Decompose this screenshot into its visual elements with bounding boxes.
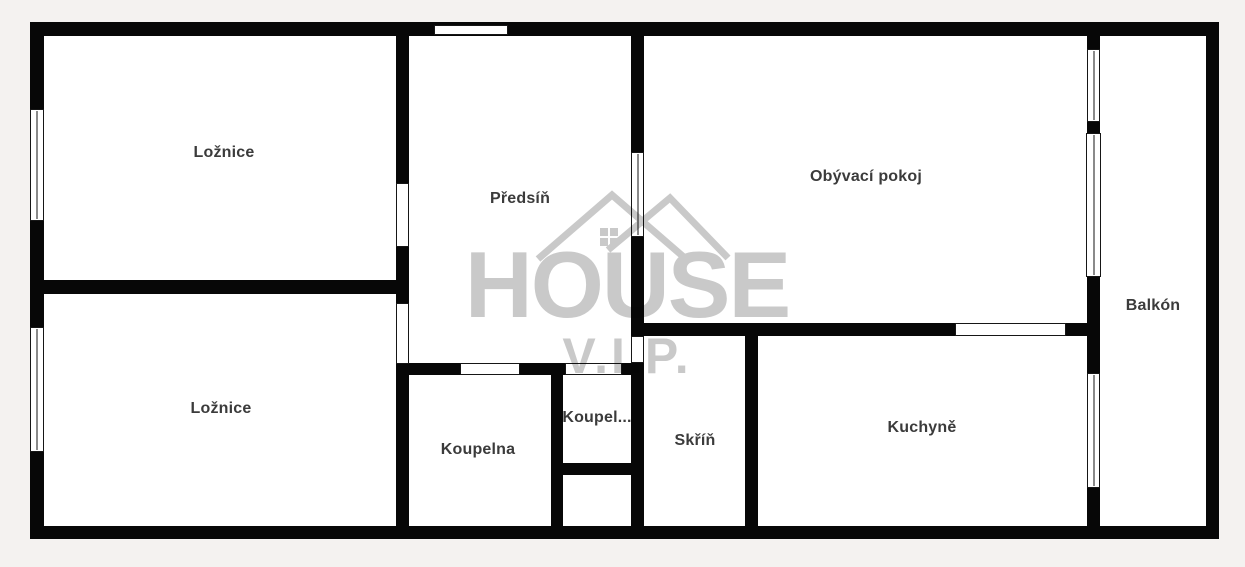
door-koupel (565, 363, 622, 375)
room-label-predsin: Předsíň (490, 190, 550, 208)
room-label-skrin: Skříň (674, 432, 715, 450)
room-balkon-area (1100, 35, 1206, 526)
room-label-obyvaci-pokoj: Obývací pokoj (810, 168, 922, 186)
door-loznice-top (396, 183, 409, 247)
wall-between-bedrooms (30, 280, 409, 294)
door-loznice-bottom (396, 303, 409, 364)
window-living-balcony (1087, 49, 1100, 122)
room-label-koupel: Koupel... (562, 409, 631, 427)
wall-bedrooms-hall (396, 35, 409, 526)
wall-skrin-kitchen (745, 323, 758, 526)
outer-wall-bottom (30, 526, 1219, 539)
room-label-loznice-bottom: Ložnice (191, 400, 252, 418)
window-kuchyne-balcony (1087, 373, 1100, 488)
balcony-door (1086, 133, 1101, 277)
room-label-koupelna: Koupelna (441, 441, 516, 459)
door-predsin-living (631, 152, 644, 237)
wall-hall-living (631, 35, 644, 526)
wall-koupel-shaft (551, 463, 644, 475)
door-kuchyne (955, 323, 1066, 336)
door-koupelna (460, 363, 520, 375)
window-loznice-top (30, 109, 44, 221)
outer-wall-top (30, 22, 1219, 36)
outer-wall-right (1206, 22, 1219, 539)
floor-plan: Ložnice Ložnice Předsíň Obývací pokoj Ba… (0, 0, 1245, 567)
room-label-loznice-top: Ložnice (194, 144, 255, 162)
room-skrin-area (644, 336, 745, 526)
door-skrin (631, 336, 644, 363)
entrance-door (434, 25, 508, 35)
room-label-balkon: Balkón (1126, 297, 1181, 315)
wall-koupelna-koupel (551, 363, 563, 526)
window-loznice-bottom (30, 327, 44, 452)
room-label-kuchyne: Kuchyně (888, 419, 957, 437)
